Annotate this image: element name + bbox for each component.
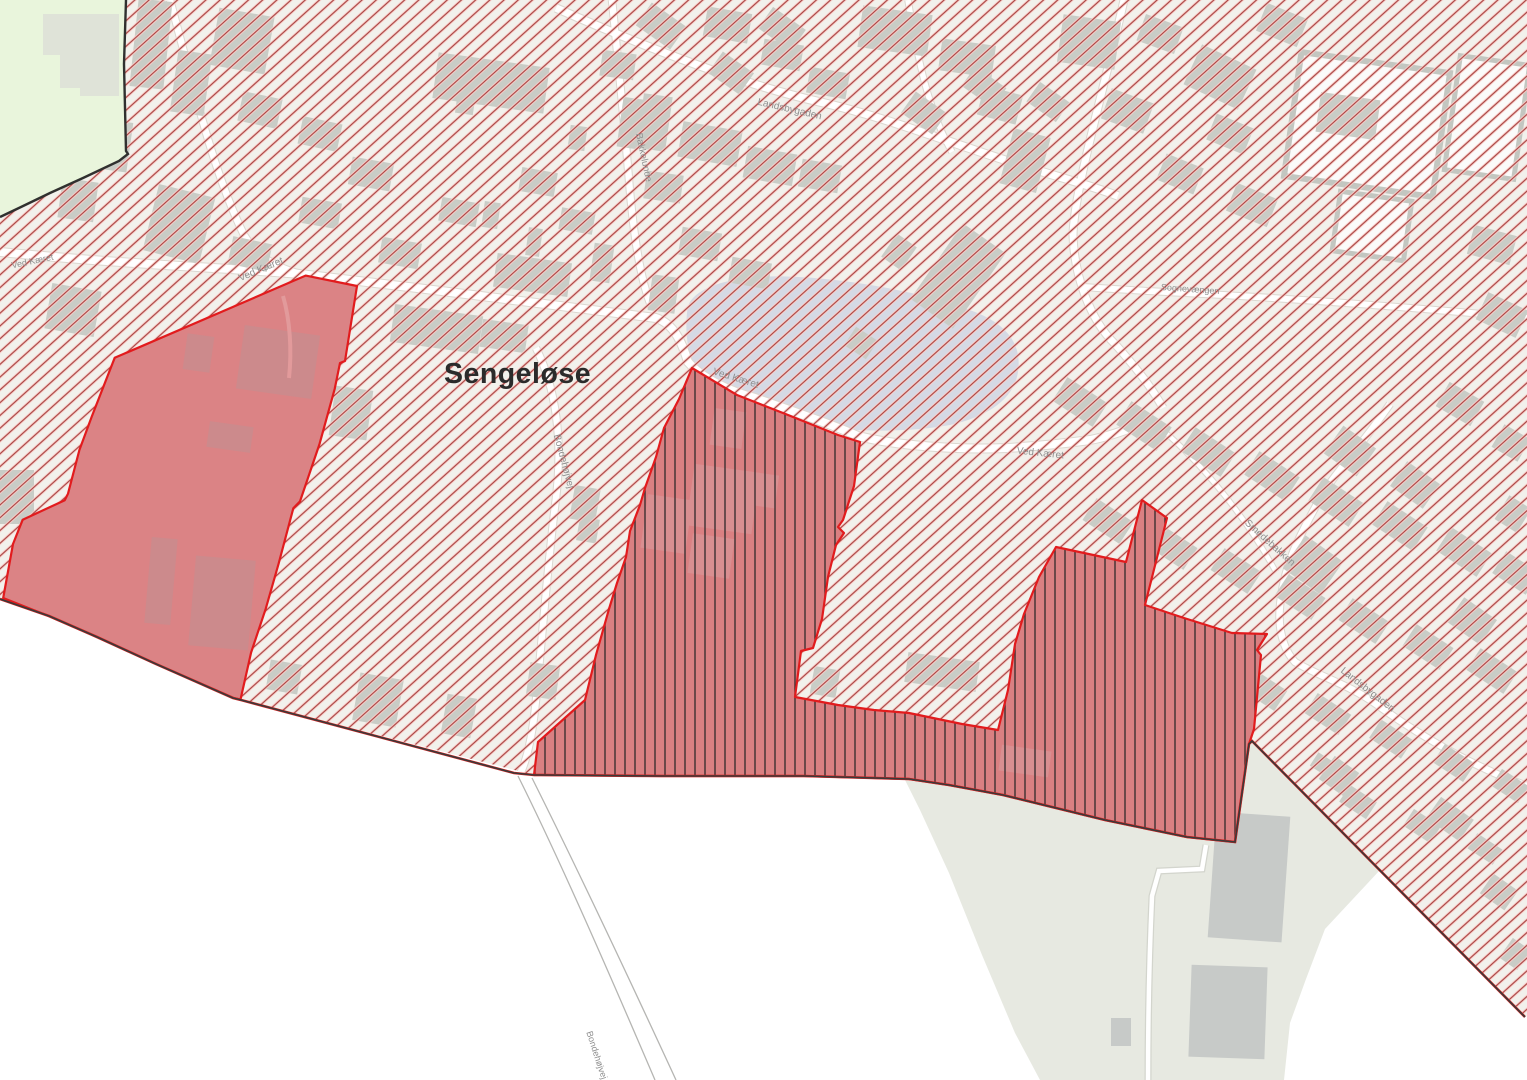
svg-text:Sengeløse: Sengeløse — [444, 358, 591, 390]
